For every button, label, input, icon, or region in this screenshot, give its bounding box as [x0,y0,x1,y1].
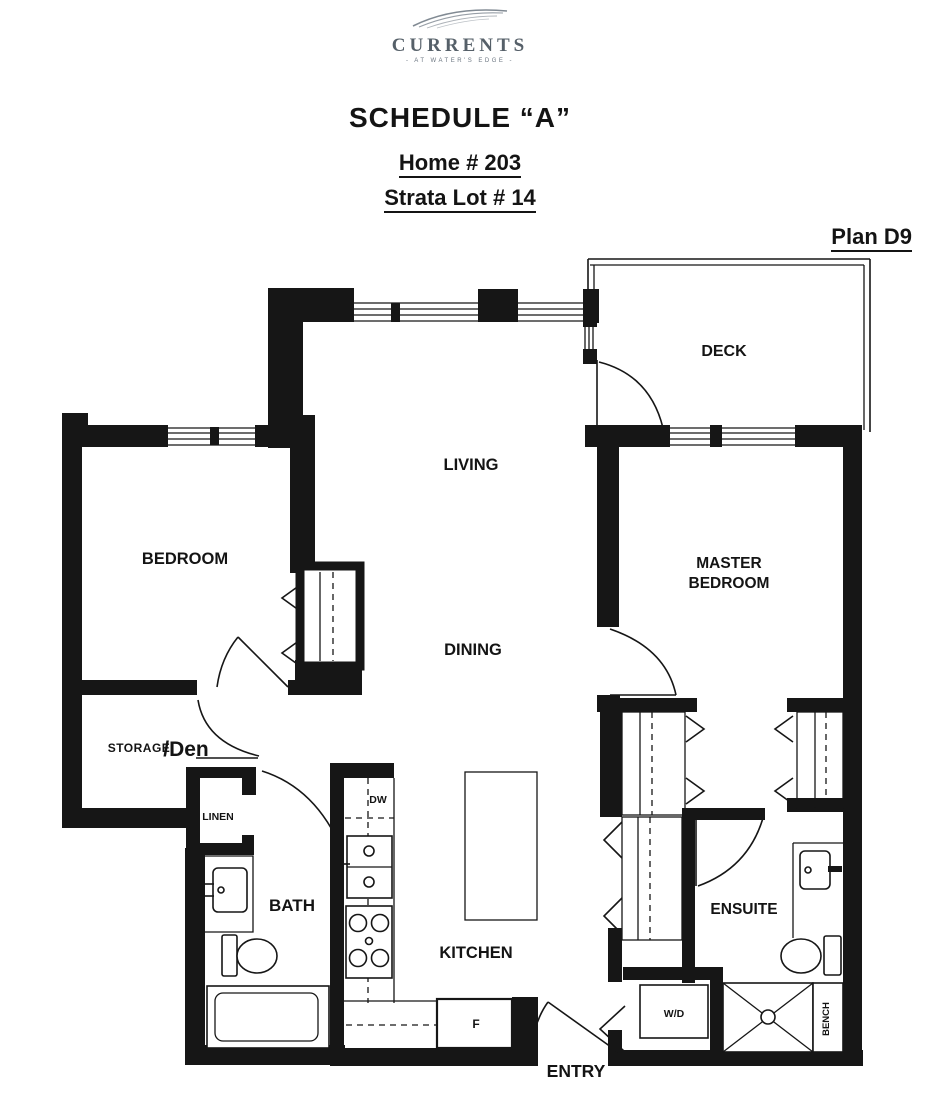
kitchen-sink-icon [337,836,392,898]
master-bedroom-window [670,428,795,445]
room-label-kitchen: KITCHEN [439,944,512,962]
deck-door [597,360,663,428]
room-label-entry: ENTRY [547,1061,606,1081]
label-bench: BENCH [821,1002,832,1036]
label-washer-dryer: W/D [664,1008,685,1020]
room-label-master-2: BEDROOM [689,575,770,592]
room-label-bath: BATH [269,896,315,915]
room-label-living: LIVING [443,456,498,474]
ensuite-sink-icon [793,843,843,938]
entry-door [531,1002,618,1052]
kitchen-island [465,772,537,920]
room-label-den: /Den [163,738,209,761]
bathtub-icon [207,986,329,1048]
master-bedroom-door [610,629,676,695]
bath-toilet-icon [222,935,277,976]
deck-side-window [585,327,593,349]
ensuite-toilet-icon [781,936,841,975]
room-label-dining: DINING [444,641,502,659]
label-fridge: F [472,1017,479,1031]
shower-icon [723,983,813,1052]
bath-sink-icon [205,856,253,932]
room-label-bedroom: BEDROOM [142,550,228,568]
hall-closet [604,817,682,940]
bedroom-door [217,637,288,687]
master-closet-left [622,712,704,815]
room-label-storage: STORAGE [108,741,171,755]
room-label-deck: DECK [701,343,747,360]
room-label-ensuite: ENSUITE [710,901,777,918]
room-labels: DECK LIVING BEDROOM MASTER BEDROOM DININ… [108,343,832,1081]
bedroom-closet [282,566,360,666]
floor-plan: DECK LIVING BEDROOM MASTER BEDROOM DININ… [0,0,945,1112]
room-label-linen: LINEN [202,811,234,823]
kitchen-counter [344,778,512,1025]
stove-icon [346,906,392,978]
room-label-master-1: MASTER [696,555,761,572]
ensuite-door [696,818,763,886]
master-closet-right [775,712,843,808]
windows [168,303,795,445]
label-dishwasher: DW [369,794,387,806]
living-windows [354,303,583,321]
